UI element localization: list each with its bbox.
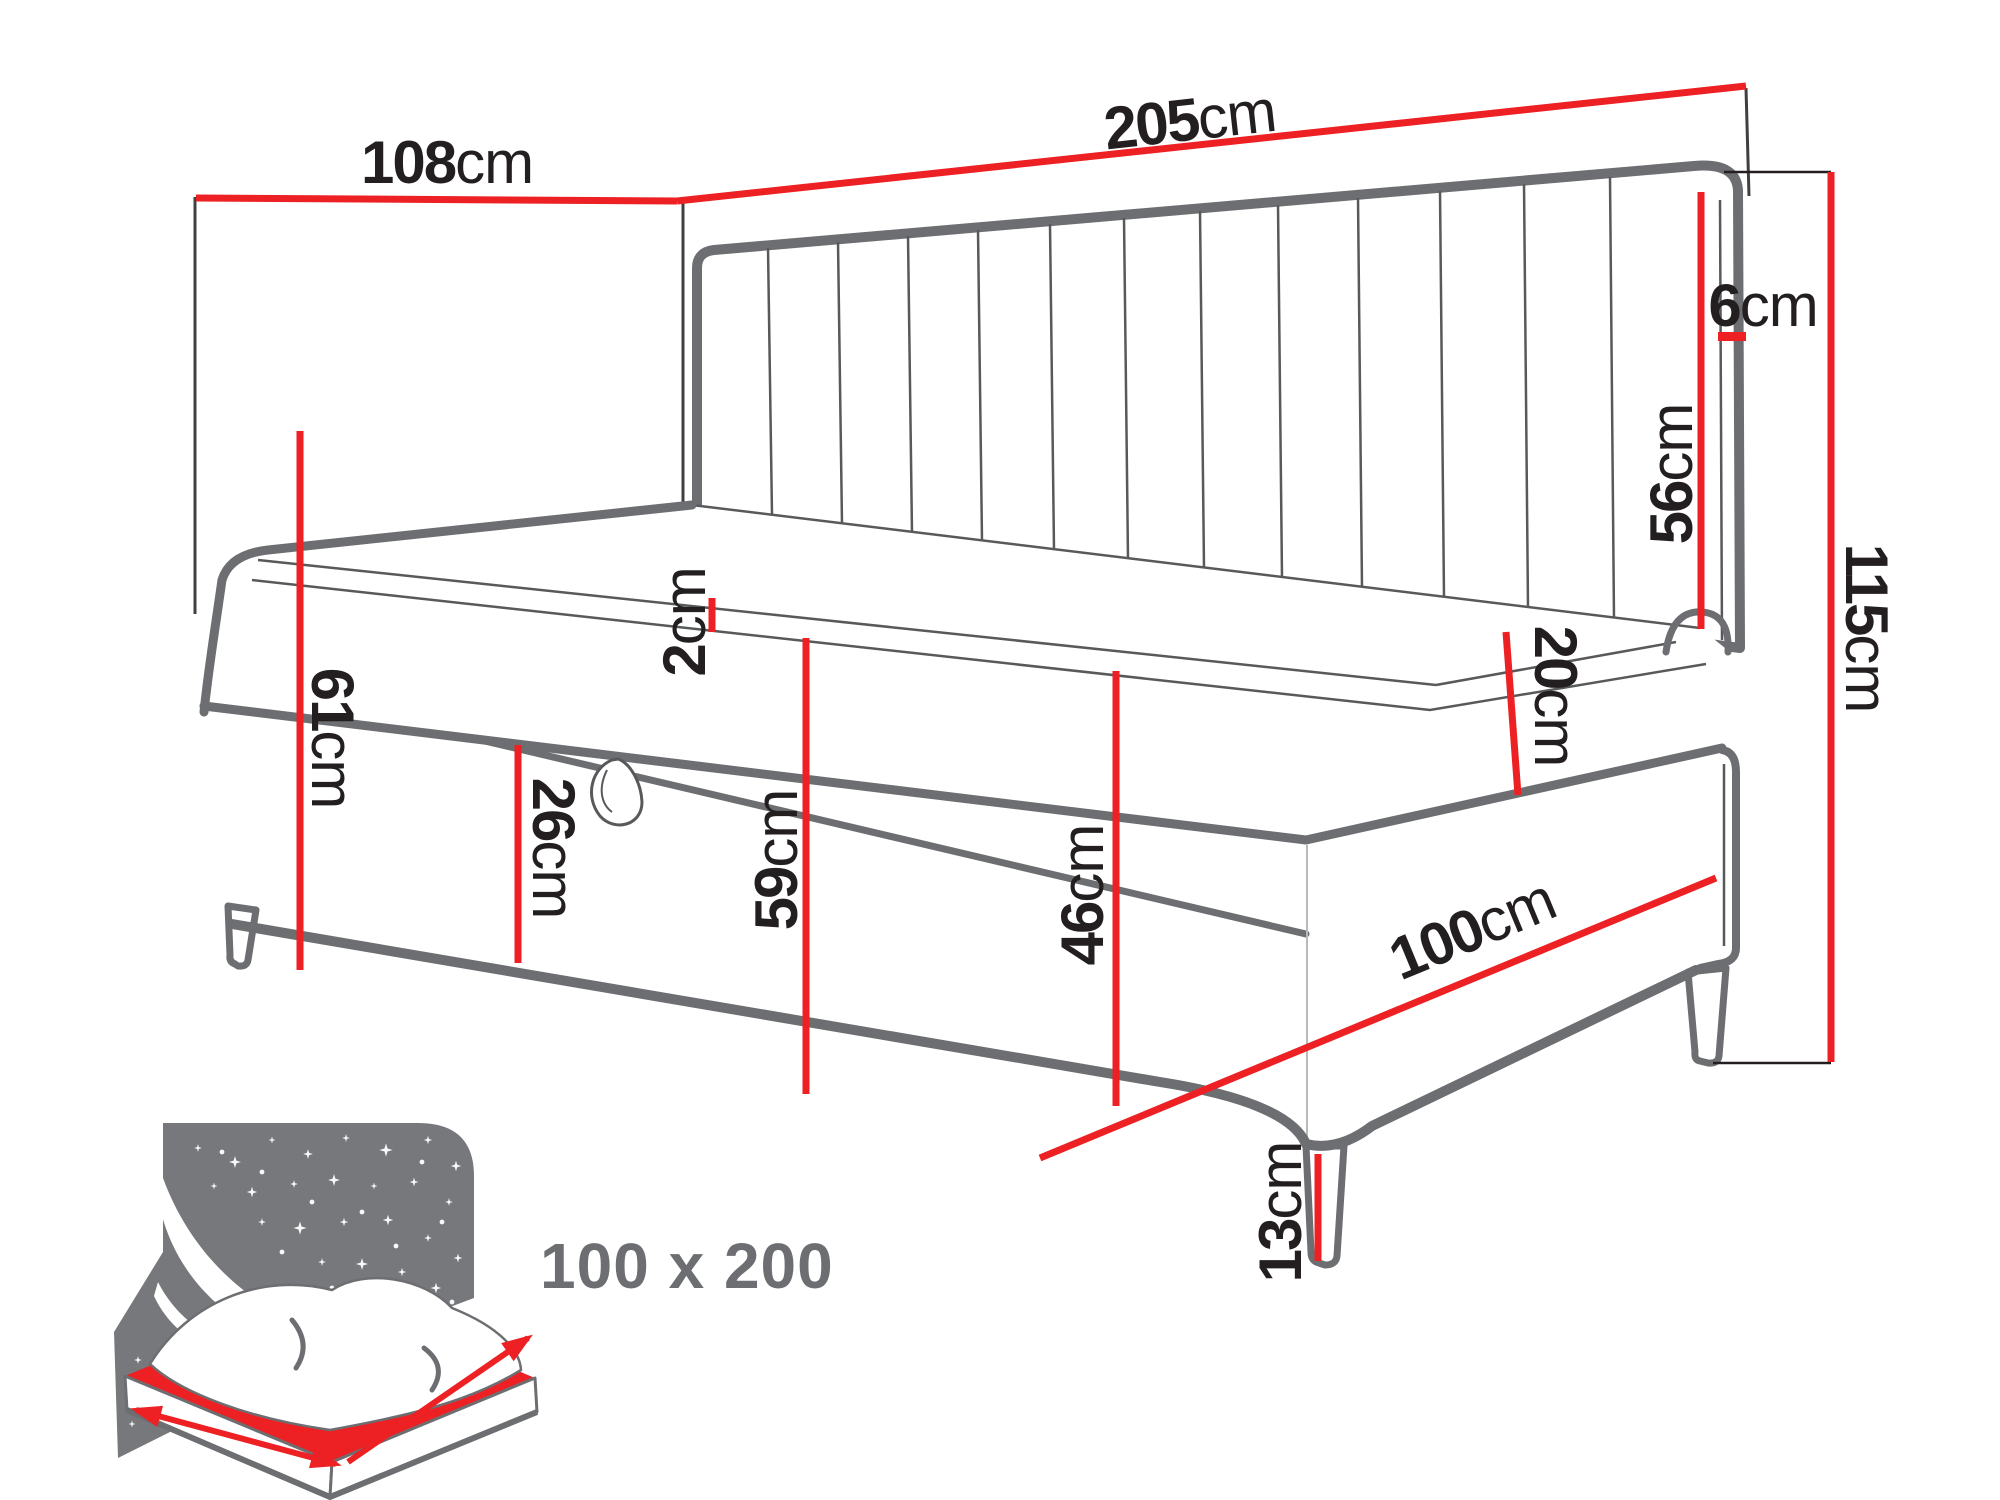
leg-back-right: [1688, 968, 1726, 1063]
leg-front-left: [228, 906, 256, 966]
dimension-label-108: 108cm: [361, 129, 533, 196]
box-top-seam: [204, 706, 1722, 840]
dimension-label-59: 59cm: [743, 790, 810, 931]
dimension-line-100: [1040, 878, 1716, 1158]
mattress: [204, 505, 1730, 712]
dimension-label-100: 100cm: [1380, 865, 1565, 993]
bed-dimension-diagram: 100 x 200: [0, 0, 2000, 1500]
size-badge: 100 x 200: [540, 1230, 834, 1302]
dimension-label-61: 61cm: [299, 668, 366, 809]
back-wall-panel: [1746, 88, 1749, 196]
dimension-label-2: 2cm: [651, 567, 718, 676]
diagram-canvas: 100 x 200: [0, 0, 2000, 1500]
box-flap-seam: [472, 738, 1306, 934]
dimension-label-20: 20cm: [1522, 626, 1589, 767]
dimension-label-13: 13cm: [1247, 1142, 1314, 1283]
dimension-labels: 108cm 205cm 6cm 56cm 115cm 2cm 61cm 26cm…: [299, 77, 1900, 1282]
dimension-label-26: 26cm: [520, 778, 587, 919]
bed-size-icon: 100 x 200: [114, 1123, 834, 1497]
dimension-label-46: 46cm: [1049, 825, 1116, 966]
box-bottom-foot-edge: [1306, 970, 1696, 1146]
dimension-label-6: 6cm: [1708, 272, 1817, 339]
dimension-line-108: [196, 198, 677, 201]
dimension-label-56: 56cm: [1638, 404, 1705, 545]
dimension-label-205: 205cm: [1101, 77, 1279, 162]
box-right-edge: [1700, 750, 1736, 968]
headboard-edge-seam: [1720, 200, 1722, 640]
storage-handle-loop: [591, 759, 642, 825]
dimension-label-115: 115cm: [1833, 544, 1900, 713]
